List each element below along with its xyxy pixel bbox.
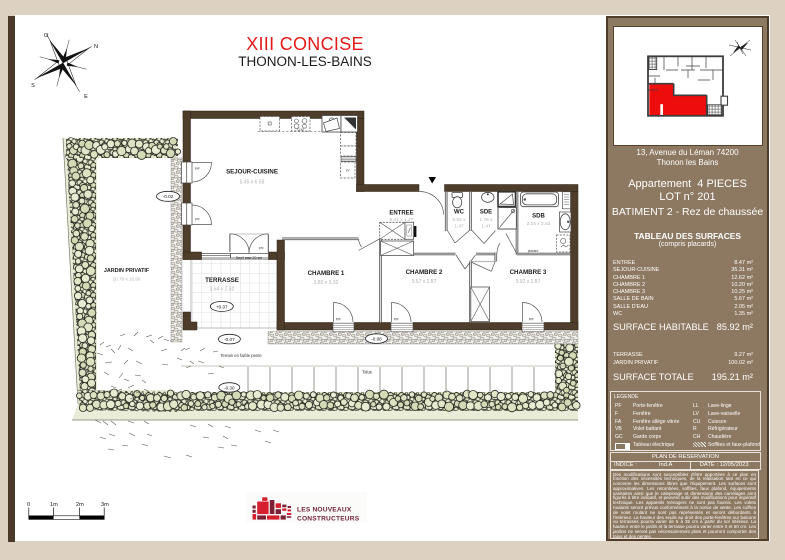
svg-text:LES NOUVEAUX: LES NOUVEAUX [297, 506, 352, 513]
svg-text:CONSTRUCTEURS: CONSTRUCTEURS [297, 515, 360, 522]
